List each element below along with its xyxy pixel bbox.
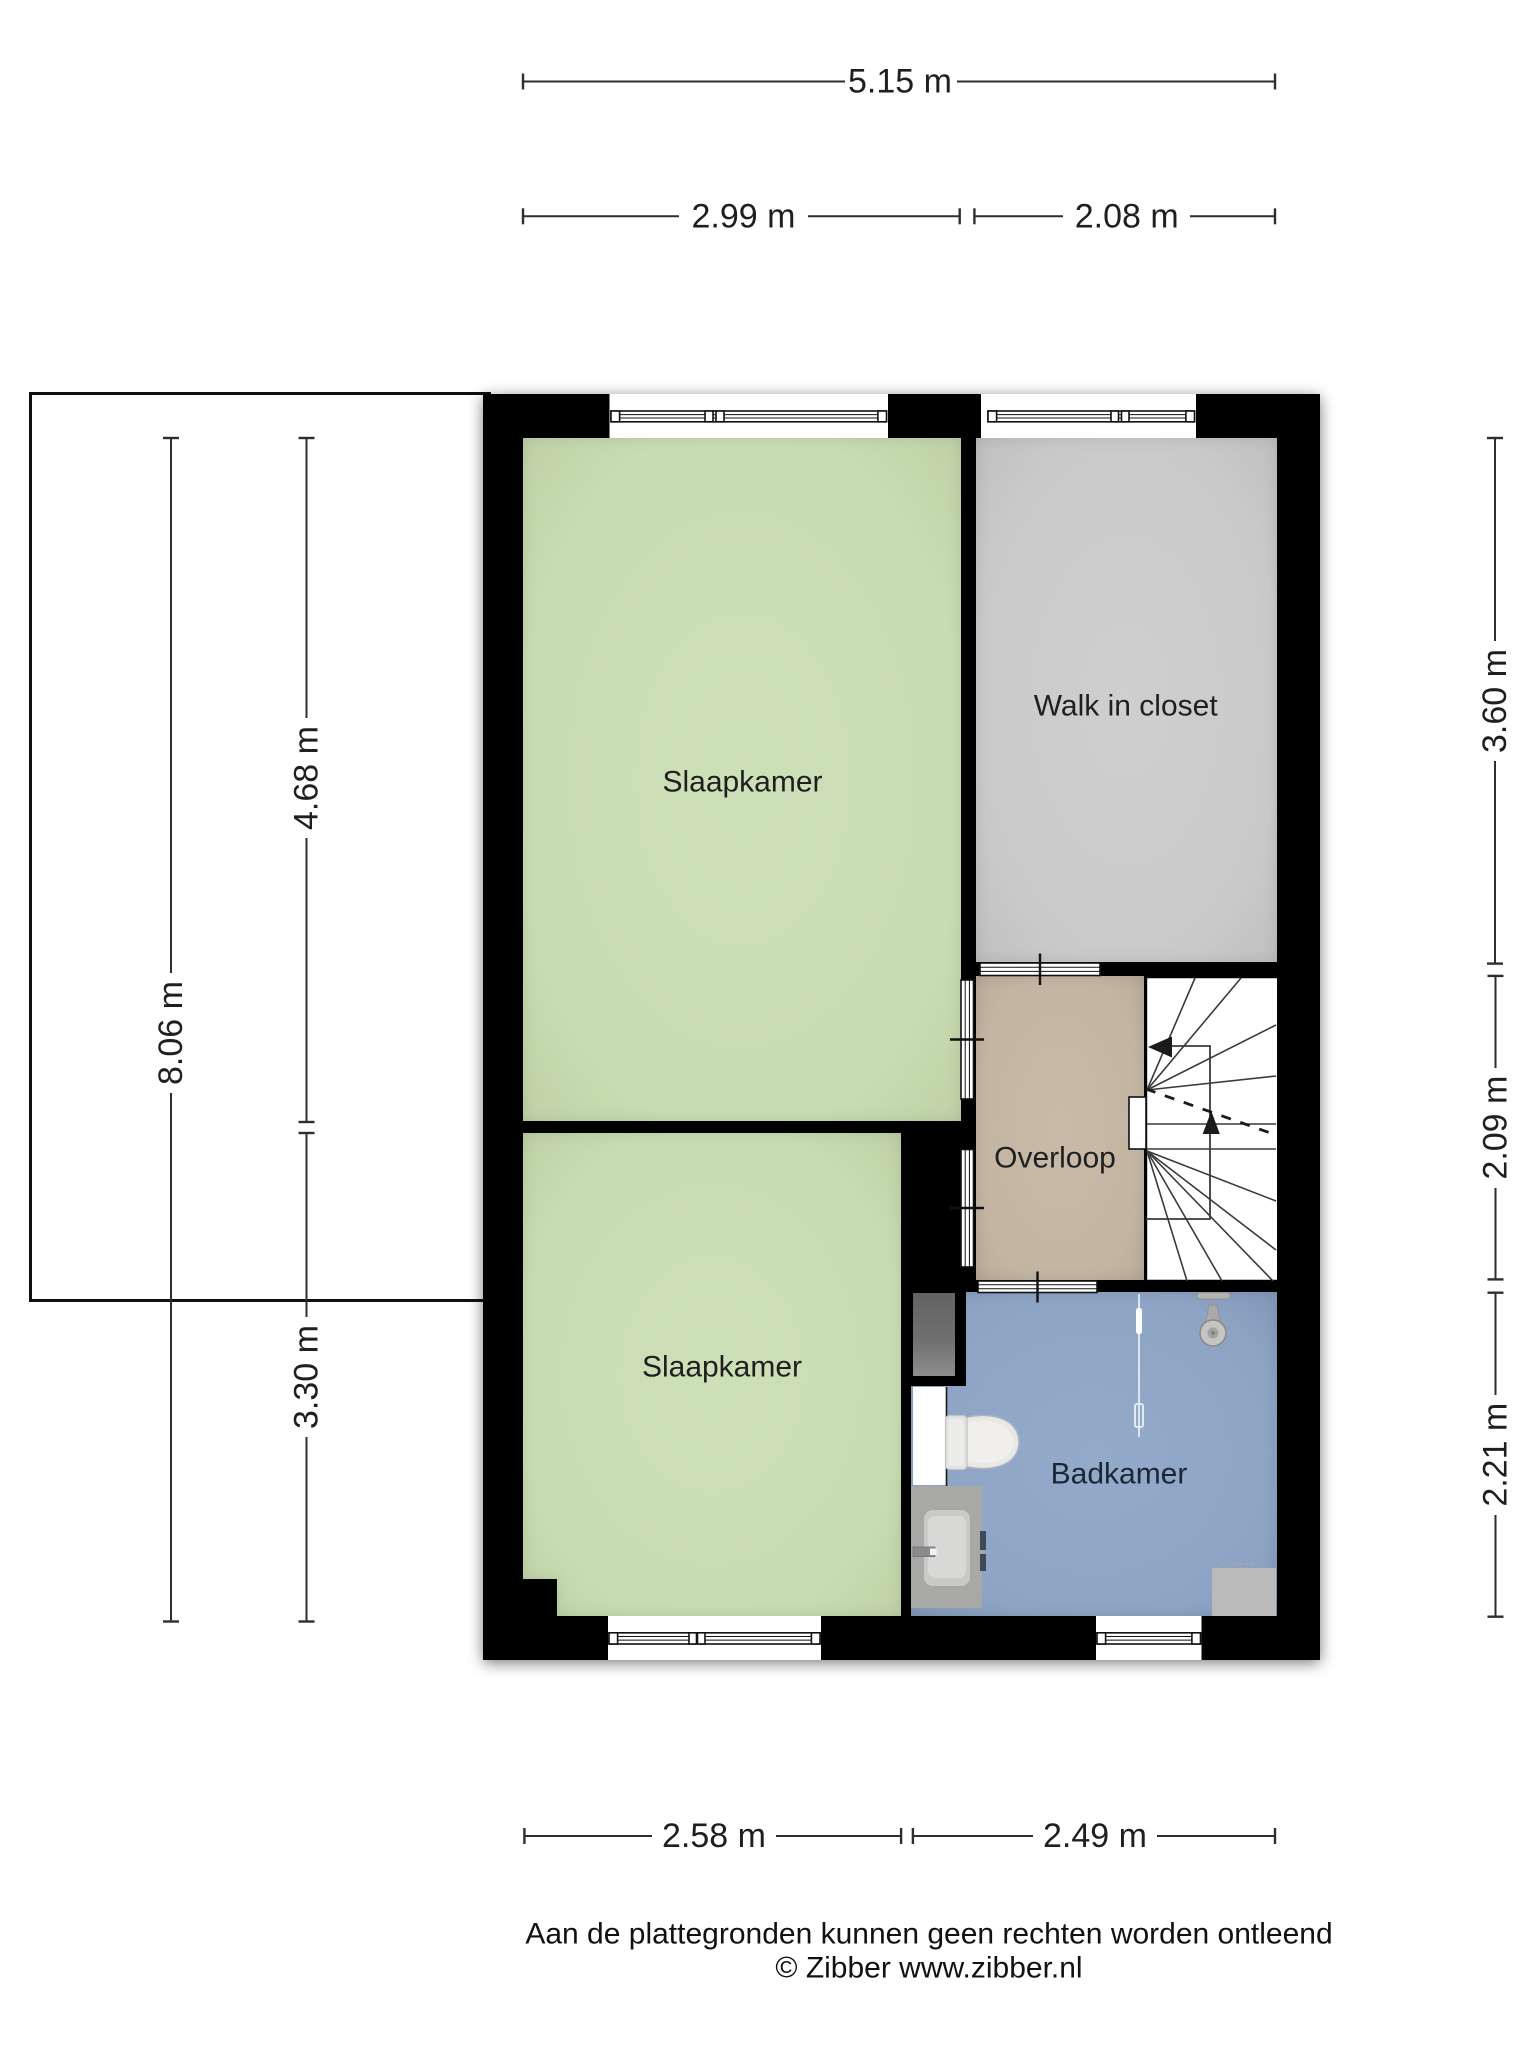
svg-text:2.09 m: 2.09 m (1477, 1076, 1515, 1180)
svg-text:3.60 m: 3.60 m (1476, 649, 1514, 753)
svg-text:Aan de plattegronden kunnen ge: Aan de plattegronden kunnen geen rechten… (525, 1918, 1332, 1951)
svg-text:4.68 m: 4.68 m (288, 726, 326, 830)
svg-text:© Zibber www.zibber.nl: © Zibber www.zibber.nl (775, 1952, 1082, 1985)
svg-text:2.49 m: 2.49 m (1043, 1817, 1147, 1855)
svg-text:8.06 m: 8.06 m (152, 981, 190, 1085)
svg-text:Slaapkamer: Slaapkamer (662, 766, 822, 799)
svg-text:Walk in closet: Walk in closet (1034, 690, 1219, 723)
svg-text:Overloop: Overloop (994, 1142, 1116, 1175)
svg-text:2.58 m: 2.58 m (662, 1817, 766, 1855)
svg-text:2.21 m: 2.21 m (1477, 1403, 1515, 1507)
svg-text:2.08 m: 2.08 m (1075, 197, 1179, 235)
svg-text:Slaapkamer: Slaapkamer (642, 1351, 802, 1384)
svg-text:2.99 m: 2.99 m (692, 197, 796, 235)
svg-text:5.15 m: 5.15 m (848, 63, 952, 101)
svg-text:Badkamer: Badkamer (1051, 1458, 1188, 1491)
svg-text:3.30 m: 3.30 m (288, 1325, 326, 1429)
